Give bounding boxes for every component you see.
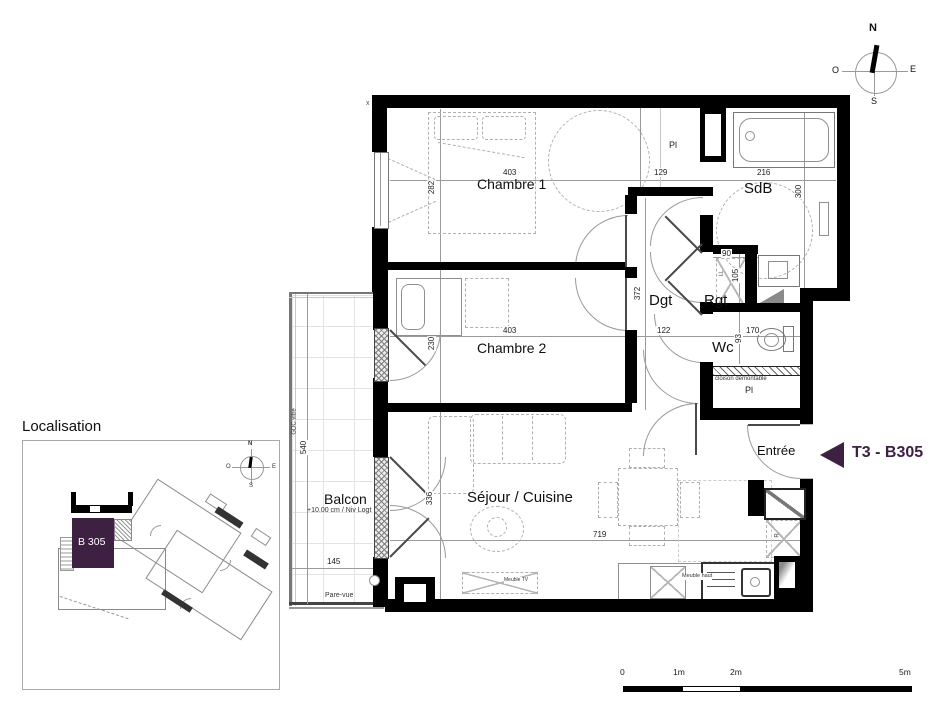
dim-sdb-height: 300 bbox=[794, 184, 803, 199]
balcony-drain bbox=[369, 575, 380, 586]
wall bbox=[373, 378, 388, 457]
scale-label-0: 0 bbox=[619, 668, 626, 677]
chair bbox=[598, 482, 618, 518]
wardrobe bbox=[465, 278, 509, 328]
wall bbox=[372, 227, 388, 292]
washer-label: LL bbox=[718, 271, 725, 277]
removable-partition bbox=[713, 366, 800, 376]
mini-compass-north-label: N bbox=[248, 441, 252, 448]
wall bbox=[800, 288, 850, 301]
mini-compass-south-label: S bbox=[249, 483, 253, 490]
compass-north-label: N bbox=[869, 22, 877, 34]
wall bbox=[373, 292, 388, 330]
floor-plan-sheet: Chambre 1 403 282 Chambre 2 403 230 SdB … bbox=[0, 0, 938, 717]
dim-sejour-width: 719 bbox=[592, 530, 607, 539]
mattress bbox=[401, 284, 425, 330]
stove bbox=[650, 566, 686, 599]
sliding-door-window bbox=[374, 457, 389, 559]
dim-closet-top: 129 bbox=[653, 168, 668, 177]
room-label-balcon: Balcon bbox=[324, 491, 367, 507]
door-leaf bbox=[695, 403, 697, 455]
entry-cabinet bbox=[764, 488, 806, 520]
upper-cabinet-label: Meuble haut bbox=[682, 573, 712, 580]
dim-balcon-height: 540 bbox=[299, 440, 308, 455]
duct-niche bbox=[705, 114, 721, 156]
sofa-cushion-line bbox=[502, 416, 503, 460]
scale-bar-segment bbox=[740, 686, 912, 692]
toilet-tank bbox=[783, 326, 794, 352]
building-wall bbox=[71, 505, 132, 513]
wall bbox=[800, 301, 813, 425]
scale-label-2m: 2m bbox=[729, 668, 743, 677]
scale-bar-segment bbox=[623, 686, 683, 692]
bathtub-drain bbox=[745, 131, 755, 141]
scale-bar-segment bbox=[683, 686, 740, 692]
wall bbox=[388, 403, 632, 412]
door-arc bbox=[643, 350, 698, 404]
building-wall bbox=[128, 492, 133, 506]
wall bbox=[700, 362, 713, 408]
wall bbox=[700, 215, 713, 252]
door-sill bbox=[800, 424, 813, 425]
unit-arrow-icon bbox=[820, 442, 844, 468]
door-arc bbox=[650, 197, 703, 246]
washbasin-bowl bbox=[768, 261, 788, 279]
closet-door-line bbox=[640, 108, 641, 187]
compass-west-label: O bbox=[832, 65, 839, 75]
sink-drain-hole bbox=[750, 577, 760, 587]
dim-chambre2-height: 230 bbox=[427, 336, 436, 351]
door-arc bbox=[643, 403, 698, 456]
balcony-rail bbox=[289, 292, 292, 606]
door-arc bbox=[390, 505, 446, 558]
dim-balcon-width: 145 bbox=[326, 557, 341, 566]
wall bbox=[713, 303, 813, 312]
dimension-line bbox=[645, 198, 646, 410]
door-leaf bbox=[625, 215, 627, 267]
duct-shaft bbox=[758, 289, 784, 304]
room-label-sejour: Séjour / Cuisine bbox=[467, 489, 573, 506]
balcony-glass-label: GDC vitre bbox=[292, 408, 299, 434]
wall bbox=[625, 330, 637, 403]
room-label-rgt: Rgt bbox=[704, 292, 727, 309]
dim-dgt-height: 372 bbox=[633, 286, 642, 301]
room-label-chambre1: Chambre 1 bbox=[477, 176, 546, 192]
plant bbox=[487, 517, 507, 537]
room-label-entree: Entrée bbox=[757, 443, 795, 458]
mini-compass-west-label: O bbox=[226, 464, 231, 471]
balcony-rail bbox=[289, 602, 384, 605]
fridge-label: R bbox=[775, 533, 782, 537]
privacy-screen-label: Pare-vue bbox=[325, 592, 353, 599]
dim-chambre2-width: 403 bbox=[502, 326, 517, 335]
unit-tag: T3 - B305 bbox=[852, 444, 923, 462]
balcony-rail-inner bbox=[295, 292, 296, 606]
compass-south-label: S bbox=[871, 96, 877, 106]
wall bbox=[837, 108, 850, 294]
sliding-door-window bbox=[374, 328, 389, 382]
scale-label-5m: 5m bbox=[898, 668, 912, 677]
wall bbox=[625, 267, 637, 278]
building-door-gap bbox=[90, 506, 100, 512]
duct-niche bbox=[779, 562, 795, 588]
dim-chambre1-width: 403 bbox=[502, 168, 517, 177]
dimension-line bbox=[292, 568, 380, 569]
room-label-wc: Wc bbox=[712, 339, 734, 356]
wall bbox=[372, 95, 850, 108]
wall-notch bbox=[404, 584, 426, 602]
closet-label-pl-top: Pl bbox=[668, 141, 678, 150]
wall bbox=[625, 195, 637, 214]
wall bbox=[385, 599, 813, 612]
highlighted-unit-label: B 305 bbox=[78, 536, 105, 548]
dim-dgt-width: 122 bbox=[656, 326, 671, 335]
sink-drainer-line bbox=[707, 586, 735, 587]
door-arc bbox=[575, 278, 628, 331]
wall bbox=[388, 262, 627, 270]
chair bbox=[629, 526, 665, 546]
wall bbox=[372, 95, 387, 152]
fridge bbox=[766, 520, 802, 558]
door-sill bbox=[800, 478, 813, 479]
sofa bbox=[470, 414, 566, 464]
balcony-rail bbox=[289, 292, 381, 294]
dim-wc-width: 170 bbox=[745, 326, 760, 335]
dim-wc-height: 93 bbox=[734, 333, 743, 344]
dim-rgt-width: 90 bbox=[721, 249, 732, 258]
dim-sdb-width: 216 bbox=[756, 168, 771, 177]
pillow bbox=[434, 116, 478, 140]
balcon-level-note: +10.00 cm / Niv Logt bbox=[307, 507, 371, 514]
compass-east-label: E bbox=[910, 64, 916, 74]
mini-compass-east-label: E bbox=[272, 464, 276, 471]
dim-chambre1-height: 282 bbox=[427, 180, 436, 195]
window bbox=[374, 152, 389, 229]
building-wall bbox=[71, 492, 76, 506]
window-pane-line bbox=[380, 153, 381, 226]
stairs-hatch bbox=[114, 519, 132, 541]
closet-label-pl-bottom: Pl bbox=[744, 386, 754, 395]
pillow bbox=[482, 116, 526, 140]
scale-label-1m: 1m bbox=[672, 668, 686, 677]
sofa-cushion-line bbox=[532, 416, 533, 460]
wall bbox=[628, 187, 713, 196]
door-leaf bbox=[625, 278, 627, 330]
dining-table bbox=[618, 468, 678, 526]
wall bbox=[748, 480, 764, 516]
balcony-rail-inner bbox=[289, 297, 375, 298]
dim-rgt-height: 105 bbox=[731, 268, 740, 283]
localisation-title: Localisation bbox=[22, 418, 101, 435]
entry-door-leaf bbox=[748, 424, 800, 426]
room-label-sdb: SdB bbox=[744, 180, 772, 197]
toilet-bowl-inner bbox=[764, 333, 779, 347]
dim-sejour-height: 336 bbox=[425, 491, 434, 506]
room-label-dgt: Dgt bbox=[649, 292, 672, 309]
corner-mark: x bbox=[366, 100, 370, 107]
wall bbox=[700, 408, 813, 420]
door-arc bbox=[575, 215, 628, 268]
towel-radiator bbox=[819, 202, 829, 236]
balcony-rail-inner bbox=[289, 607, 384, 609]
tv-cabinet-label: Meuble TV bbox=[504, 577, 528, 584]
removable-partition-label: cloison demontable bbox=[715, 376, 767, 383]
room-label-chambre2: Chambre 2 bbox=[477, 340, 546, 356]
wall bbox=[745, 248, 757, 306]
